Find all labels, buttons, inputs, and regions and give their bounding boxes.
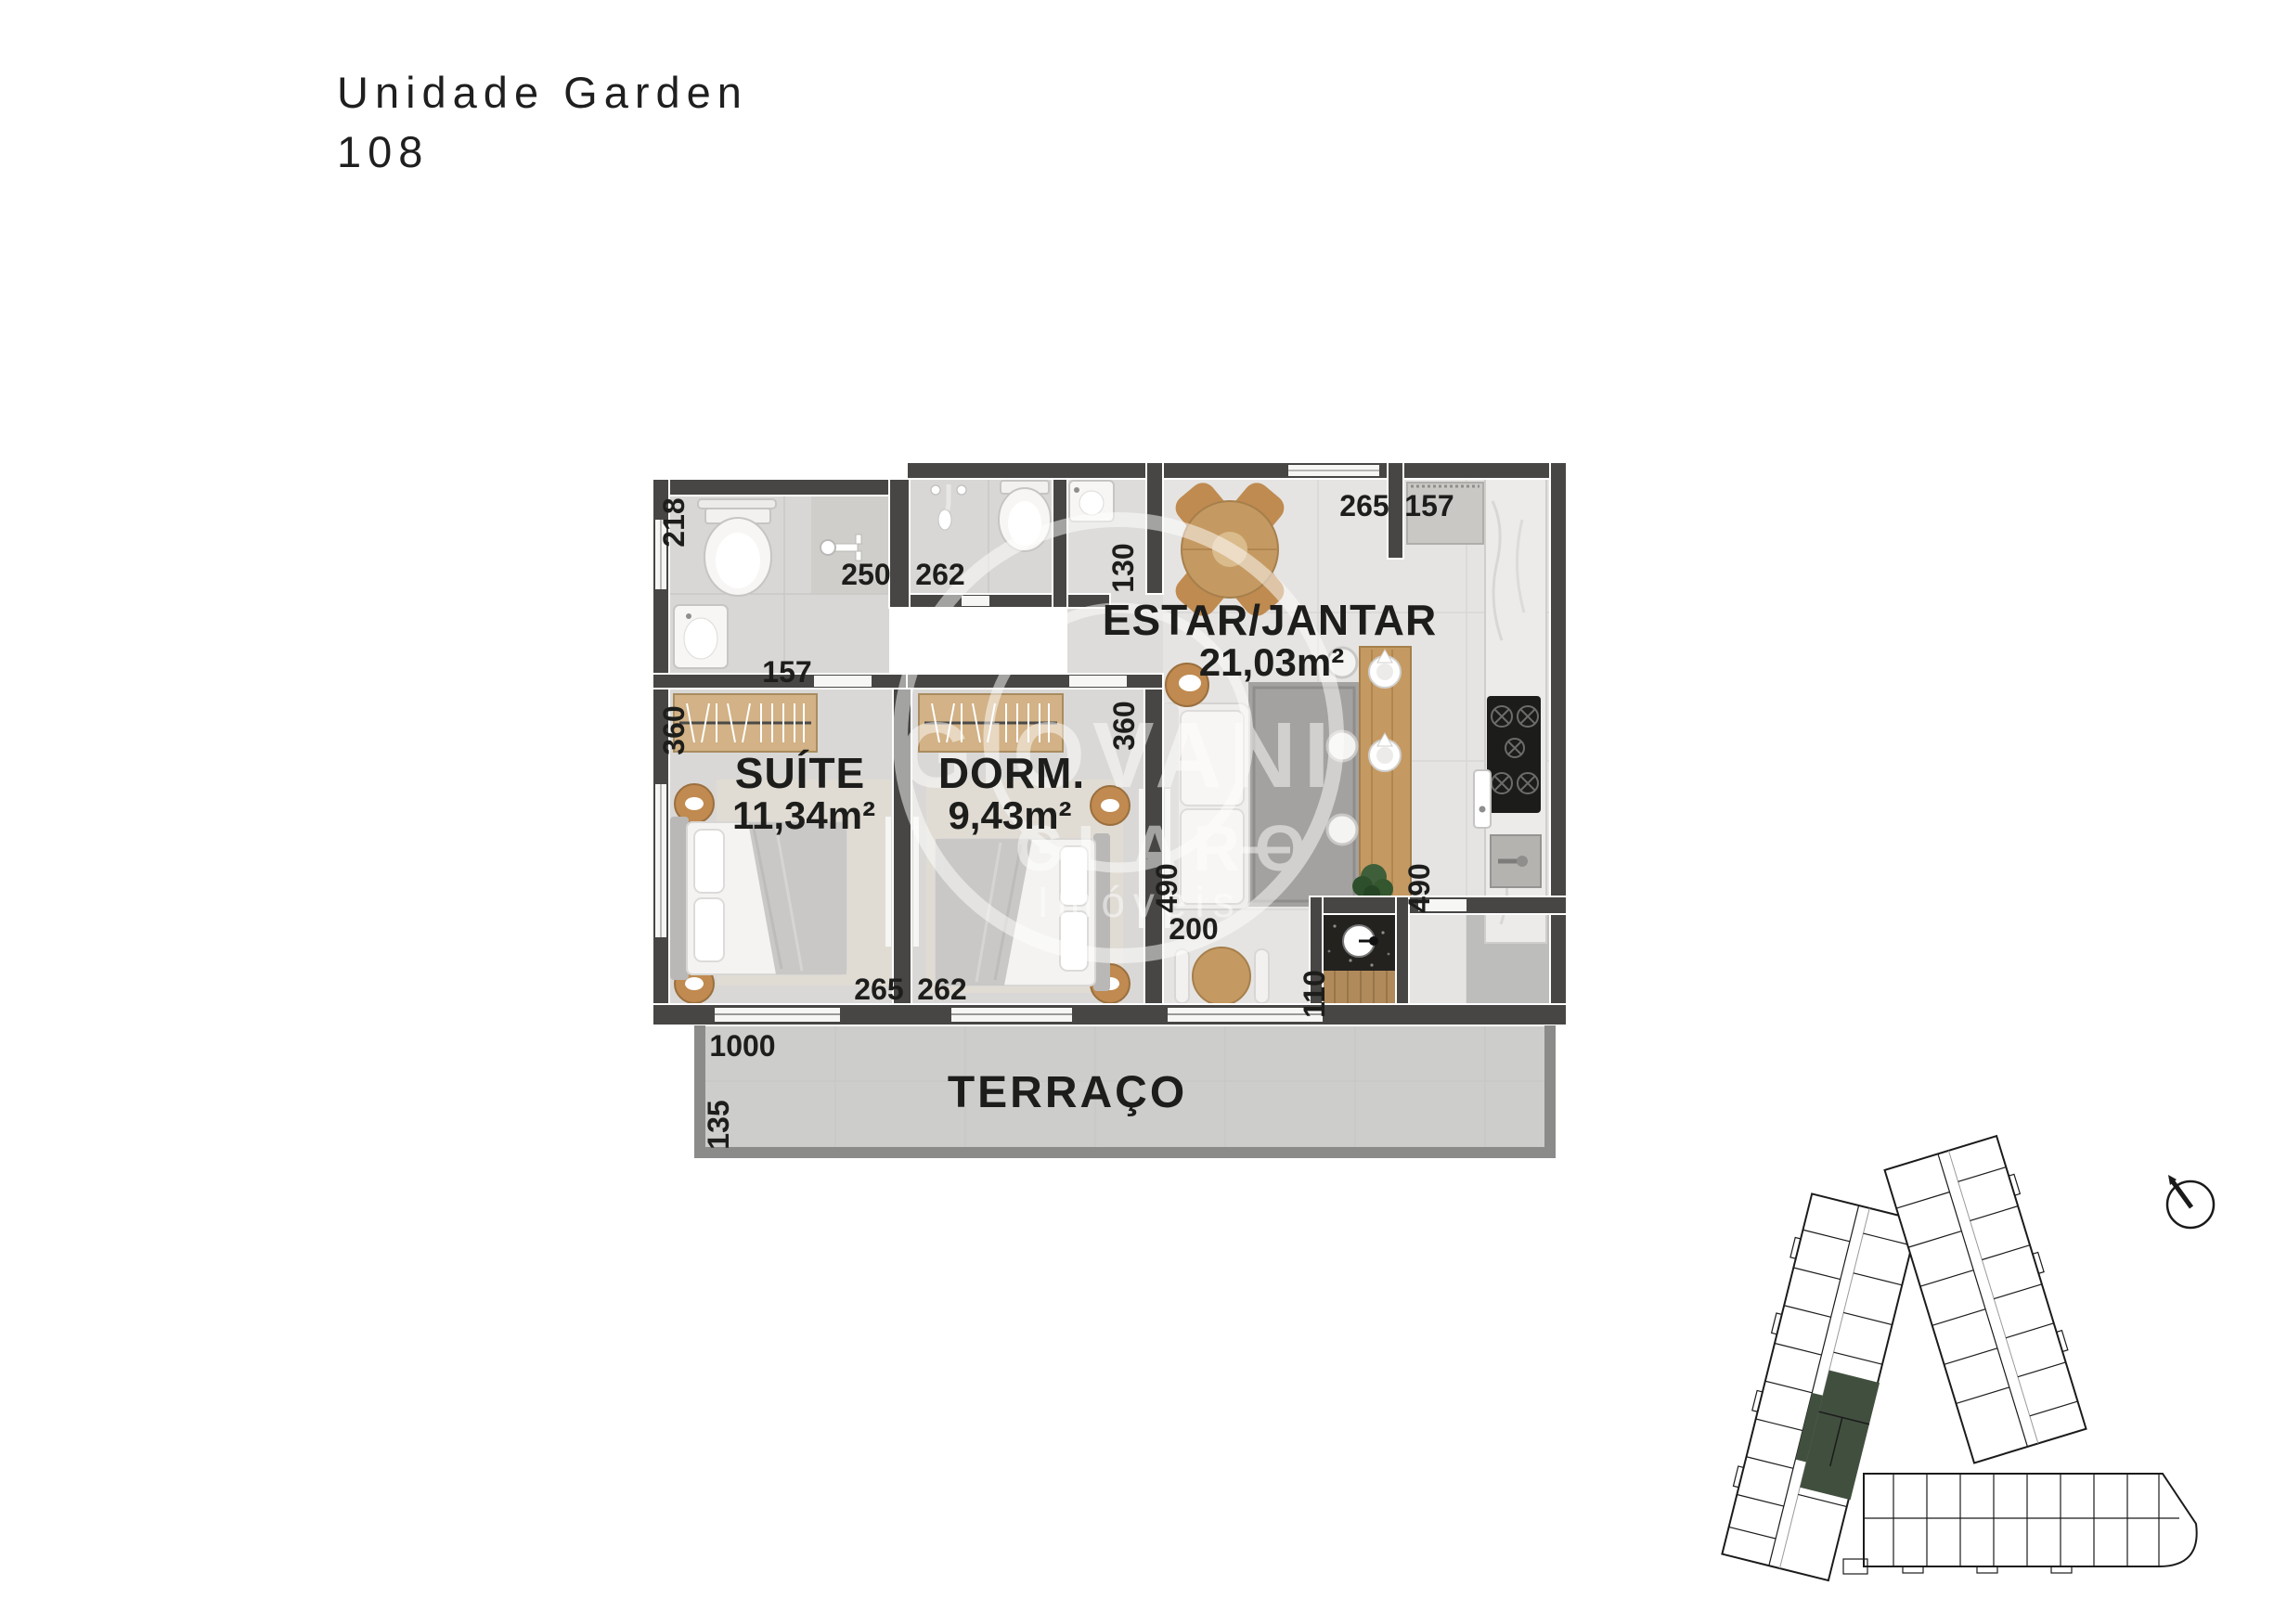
dim-490-kitchen: 490 bbox=[1402, 863, 1436, 912]
dorm-door bbox=[1069, 676, 1127, 687]
dim-250: 250 bbox=[841, 558, 890, 591]
dim-265-suite: 265 bbox=[854, 973, 903, 1006]
dim-200: 200 bbox=[1169, 912, 1218, 946]
room-label-suite: SUÍTE bbox=[735, 749, 865, 797]
stove bbox=[1487, 696, 1541, 813]
dim-262-bath: 262 bbox=[915, 558, 964, 591]
dim-360-suite: 360 bbox=[657, 705, 691, 754]
unit-title: Unidade Garden108 bbox=[337, 63, 748, 182]
terrace-sliding-doors bbox=[715, 1008, 1323, 1022]
coffee-table-set bbox=[1175, 947, 1269, 1005]
floor-plan-svg: GIOVANI CLARO Imóveis SUÍTE 11,34m² DORM… bbox=[0, 0, 2274, 1624]
dim-130: 130 bbox=[1106, 543, 1140, 592]
page-canvas: Unidade Garden108 bbox=[0, 0, 2274, 1624]
north-compass-icon bbox=[2167, 1175, 2214, 1228]
site-map bbox=[1717, 1134, 2197, 1580]
dim-110: 110 bbox=[1298, 970, 1331, 1018]
unit-title-number: 108 bbox=[337, 127, 429, 176]
bath1-sink bbox=[674, 605, 728, 668]
room-area-dorm: 9,43m² bbox=[948, 793, 1071, 837]
dim-157-kitchen: 157 bbox=[1404, 489, 1454, 522]
dim-360-dorm: 360 bbox=[1107, 701, 1141, 750]
bath2-door bbox=[962, 596, 989, 606]
dim-490-living: 490 bbox=[1150, 863, 1183, 912]
suite-door bbox=[814, 676, 872, 687]
dim-265-estar: 265 bbox=[1339, 489, 1389, 522]
room-label-estar: ESTAR/JANTAR bbox=[1103, 596, 1437, 644]
dim-218: 218 bbox=[657, 497, 691, 547]
dim-262-dorm: 262 bbox=[917, 973, 966, 1006]
room-label-terraco: TERRAÇO bbox=[948, 1068, 1187, 1117]
kitchen-sink bbox=[1474, 770, 1491, 828]
stool bbox=[1327, 815, 1357, 844]
room-area-suite: 11,34m² bbox=[732, 793, 875, 837]
dim-157-bath: 157 bbox=[762, 655, 811, 689]
dim-1000: 1000 bbox=[709, 1029, 775, 1063]
unit-title-line1: Unidade Garden bbox=[337, 68, 748, 117]
room-area-estar: 21,03m² bbox=[1199, 640, 1344, 684]
dim-135: 135 bbox=[702, 1100, 735, 1149]
room-label-dorm: DORM. bbox=[938, 749, 1085, 797]
suite-bed bbox=[670, 817, 846, 980]
suite-wardrobe bbox=[674, 694, 817, 752]
